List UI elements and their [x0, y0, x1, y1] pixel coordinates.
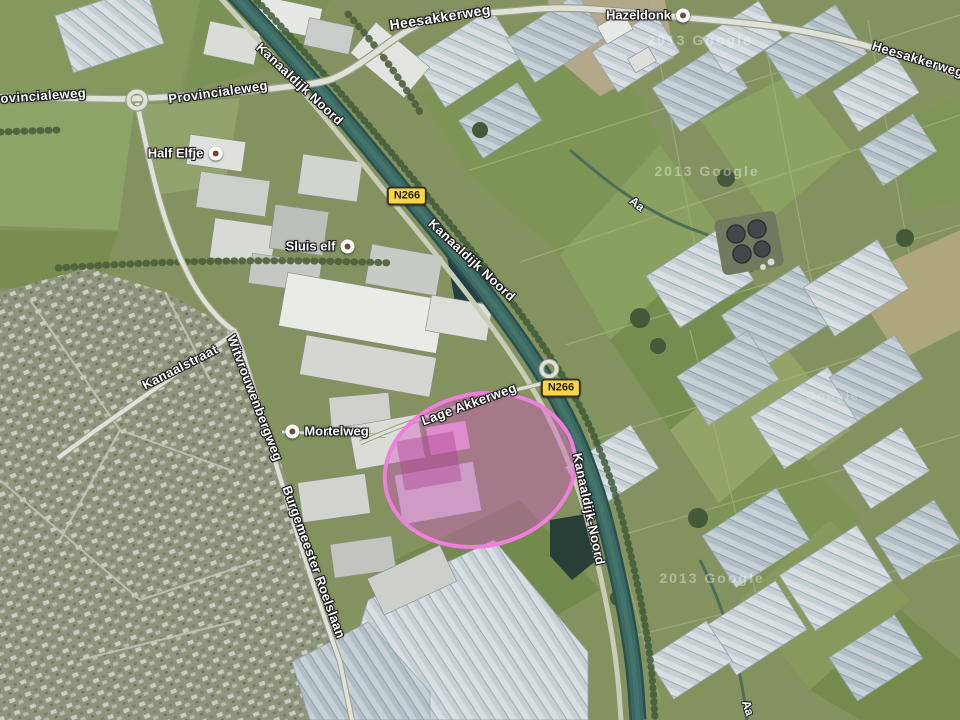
water-treatment-plant: [714, 210, 785, 276]
satellite-imagery: [0, 0, 960, 720]
map-canvas[interactable]: Heesakkerweg Heesakkerweg Provincialeweg…: [0, 0, 960, 720]
